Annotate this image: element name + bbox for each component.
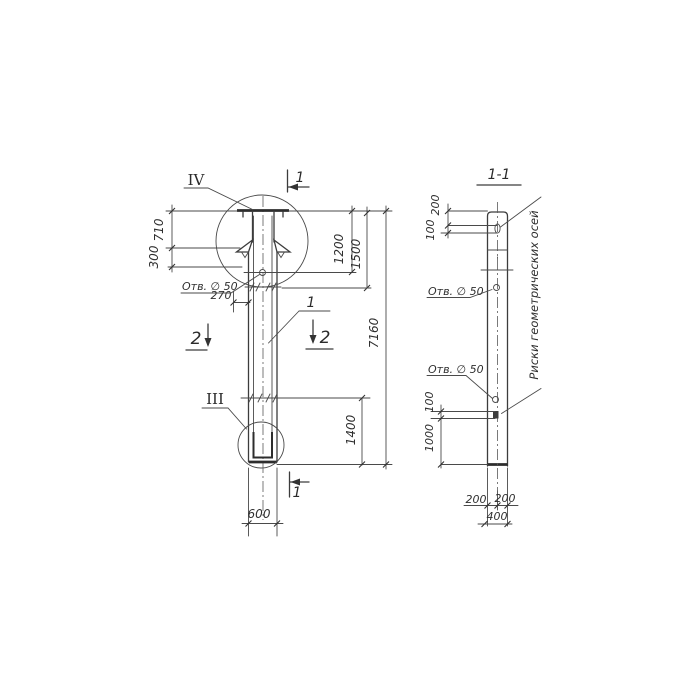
- section-dim-bottom-lines: [431, 405, 495, 468]
- dim-chain-left: [166, 205, 242, 272]
- dim-1500: 1500: [349, 238, 363, 269]
- hole-section-upper: [494, 285, 500, 291]
- dim-400: 400: [487, 510, 508, 523]
- dim-300: 300: [147, 245, 161, 268]
- hole-label-lower: Отв. ∅ 50: [428, 363, 484, 376]
- dim-100-lower: 100: [423, 392, 436, 413]
- dim-1200: 1200: [332, 233, 346, 264]
- section-mark-1-bottom-label: 1: [293, 485, 302, 501]
- dim-600: 600: [248, 507, 271, 521]
- axis-slot-lower: [493, 411, 499, 419]
- dim-200-left: 200: [466, 493, 487, 506]
- technical-drawing: 710 300 270 Отв. ∅ 50 12: [0, 0, 700, 700]
- drawing-sheet: 710 300 270 Отв. ∅ 50 12: [0, 0, 700, 700]
- section-title: 1-1: [488, 167, 511, 183]
- detail-circle-IV: [216, 195, 308, 287]
- dim-710: 710: [152, 218, 166, 241]
- section-dim-top-lines: [441, 204, 497, 238]
- dim-600-lines: [242, 468, 283, 536]
- dim-100-upper: 100: [424, 220, 437, 241]
- detail-marker-III: [202, 408, 247, 429]
- detail-marker-IV-label: IV: [188, 171, 206, 189]
- section-mark-2-left-label: 2: [191, 329, 202, 349]
- section-bar: [481, 202, 513, 491]
- dim-1400: 1400: [344, 414, 358, 445]
- dim-1000: 1000: [423, 424, 436, 452]
- dim-200-right: 200: [495, 492, 516, 505]
- part-number-label: 1: [307, 295, 316, 311]
- front-view: 710 300 270 Отв. ∅ 50 12: [147, 170, 392, 536]
- dim-200-top: 200: [429, 195, 442, 216]
- hole-label-lower-leader: [427, 376, 493, 399]
- wedge-barb-left: [237, 240, 253, 258]
- hole-label-upper: Отв. ∅ 50: [428, 285, 484, 298]
- detail-marker-IV: [184, 188, 253, 210]
- section-view: 1-1 200 100 100 1000: [423, 167, 541, 527]
- section-mark-2-right-label: 2: [320, 328, 331, 348]
- axes-note: Риски геометрических осей: [527, 210, 541, 380]
- detail-marker-III-label: III: [206, 390, 224, 408]
- dim-7160: 7160: [367, 317, 381, 348]
- hole-label-front: Отв. ∅ 50: [182, 280, 238, 293]
- section-mark-1-top-label: 1: [296, 170, 305, 186]
